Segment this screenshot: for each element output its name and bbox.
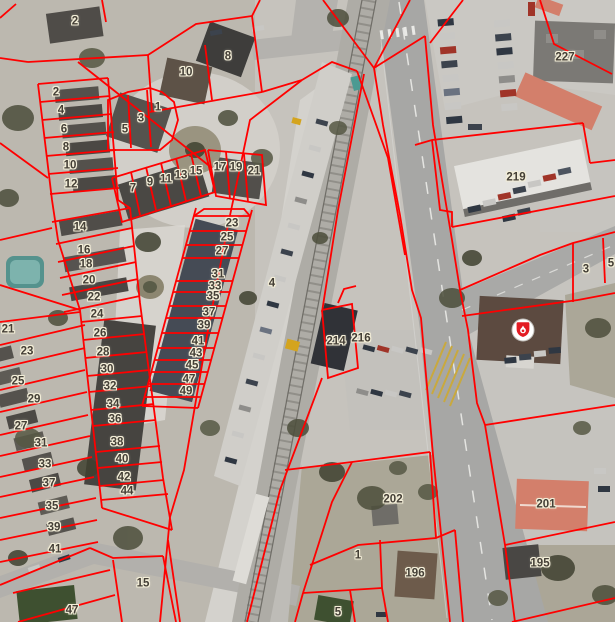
parcel-label: 9 — [147, 177, 153, 189]
parcel-label: 2 — [72, 16, 78, 28]
parcel-label: 42 — [118, 472, 131, 484]
parcel-label: 8 — [225, 51, 231, 63]
parcel-label: 45 — [186, 360, 199, 372]
parcel-label: 11 — [160, 174, 172, 186]
parcel-label: 47 — [66, 605, 79, 617]
parcel-label: 32 — [104, 381, 117, 393]
parcel-label: 1 — [155, 102, 161, 114]
fire-station-marker-icon[interactable] — [510, 317, 536, 343]
parcel-label: 41 — [192, 336, 205, 348]
parcel-labels-layer: 2810246810121357911131517192114161820222… — [0, 0, 615, 622]
parcel-label: 214 — [326, 336, 345, 348]
parcel-label: 37 — [43, 478, 56, 490]
parcel-label: 5 — [608, 258, 614, 270]
parcel-label: 13 — [175, 170, 188, 182]
parcel-label: 33 — [39, 459, 52, 471]
parcel-label: 14 — [74, 222, 87, 234]
parcel-label: 201 — [536, 499, 555, 511]
parcel-label: 4 — [269, 278, 275, 290]
parcel-label: 21 — [248, 166, 261, 178]
parcel-label: 30 — [101, 364, 114, 376]
parcel-label: 44 — [121, 486, 134, 498]
parcel-label: 15 — [137, 578, 150, 590]
parcel-label: 22 — [88, 292, 101, 304]
parcel-label: 21 — [2, 324, 15, 336]
parcel-label: 10 — [180, 67, 193, 79]
parcel-label: 26 — [94, 328, 107, 340]
parcel-label: 25 — [221, 232, 234, 244]
parcel-label: 27 — [216, 246, 229, 258]
parcel-label: 227 — [555, 52, 574, 64]
parcel-label: 2 — [53, 87, 59, 99]
parcel-label: 195 — [530, 558, 549, 570]
parcel-label: 23 — [226, 218, 239, 230]
parcel-label: 4 — [58, 105, 64, 117]
map-viewport[interactable]: 2810246810121357911131517192114161820222… — [0, 0, 615, 622]
parcel-label: 25 — [12, 376, 25, 388]
parcel-label: 16 — [78, 245, 91, 257]
parcel-label: 17 — [214, 162, 227, 174]
parcel-label: 18 — [80, 259, 93, 271]
parcel-label: 3 — [138, 113, 144, 125]
parcel-label: 12 — [65, 179, 78, 191]
parcel-label: 216 — [351, 333, 370, 345]
parcel-label: 36 — [109, 414, 122, 426]
parcel-label: 23 — [21, 346, 34, 358]
parcel-label: 10 — [64, 160, 77, 172]
parcel-label: 29 — [28, 394, 41, 406]
parcel-label: 35 — [207, 291, 220, 303]
parcel-label: 5 — [335, 607, 341, 619]
parcel-label: 15 — [190, 166, 203, 178]
parcel-label: 24 — [91, 309, 104, 321]
parcel-label: 39 — [48, 522, 61, 534]
parcel-label: 28 — [97, 347, 110, 359]
parcel-label: 196 — [405, 568, 424, 580]
parcel-label: 39 — [198, 320, 211, 332]
parcel-label: 19 — [230, 162, 243, 174]
parcel-label: 5 — [122, 124, 128, 136]
parcel-label: 27 — [15, 421, 28, 433]
parcel-label: 47 — [183, 374, 196, 386]
parcel-label: 33 — [209, 281, 222, 293]
parcel-label: 35 — [46, 501, 59, 513]
parcel-label: 1 — [355, 550, 361, 562]
parcel-label: 3 — [583, 264, 589, 276]
parcel-label: 43 — [190, 348, 203, 360]
parcel-label: 202 — [383, 494, 402, 506]
parcel-label: 31 — [35, 438, 48, 450]
parcel-label: 41 — [49, 544, 62, 556]
parcel-label: 34 — [107, 399, 120, 411]
parcel-label: 8 — [63, 142, 69, 154]
parcel-label: 38 — [111, 437, 124, 449]
parcel-label: 219 — [506, 172, 525, 184]
parcel-label: 49 — [180, 386, 193, 398]
parcel-label: 37 — [203, 307, 216, 319]
parcel-label: 6 — [61, 124, 67, 136]
parcel-label: 31 — [212, 269, 225, 281]
parcel-label: 20 — [83, 275, 96, 287]
parcel-label: 7 — [130, 183, 136, 195]
parcel-label: 40 — [116, 454, 129, 466]
